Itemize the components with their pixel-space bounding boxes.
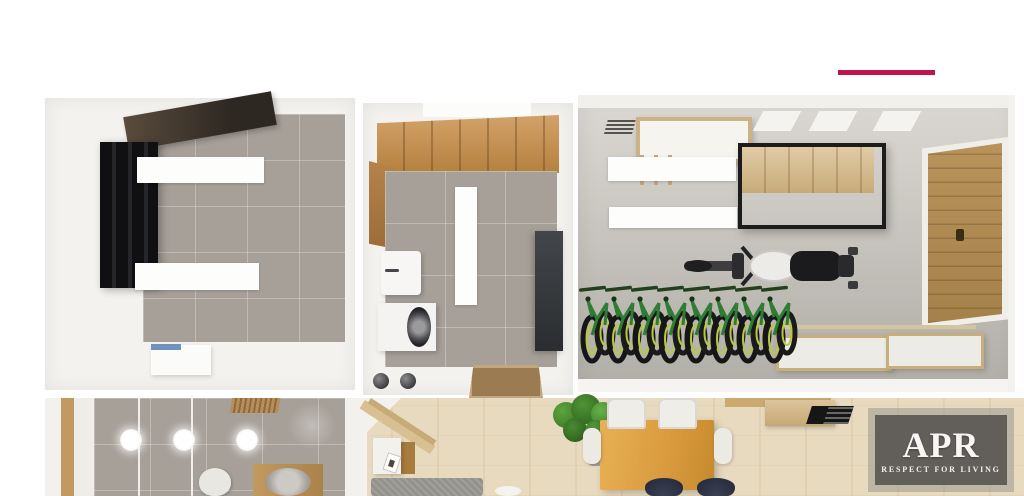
wood-door-frame [61,398,74,496]
vent-grille-icon [604,119,636,134]
laptop [806,406,854,424]
tall-dark-cabinet [535,231,563,351]
brand-tagline: RESPECT FOR LIVING [881,465,1000,474]
doormat [469,365,543,399]
white-wall-shelf [137,157,264,183]
tile-wall [143,114,345,342]
dining-chair-white [607,398,646,429]
rug [371,478,483,496]
floor-knob [400,373,416,389]
brand-logo-text: APR [903,427,980,463]
floor-knob [373,373,389,389]
ceiling-light-icon [236,429,258,451]
watermark-inner: APR RESPECT FOR LIVING [875,415,1007,485]
cabinet-wood-box [742,147,874,193]
dining-chair-dark [697,478,735,496]
floor-plan-render: APR RESPECT FOR LIVING [0,0,1024,496]
dining-chair-white [714,428,732,464]
storage-bench [886,333,984,369]
round-basin [265,468,311,496]
garage [578,95,1015,392]
wall [578,379,1015,392]
suspended-wood-cabinet [738,143,886,229]
wall-panel [423,103,531,117]
utility-room [363,103,573,395]
wooden-garage-door [928,143,1002,323]
wall [345,398,367,496]
white-door [74,398,94,496]
washing-machine-door [407,307,431,347]
storage-box-lid [151,344,181,350]
wood-slat-mat [230,398,281,413]
dining-chair-white [583,428,601,464]
wall [1008,95,1015,392]
faucet-icon [385,269,399,272]
white-stool [495,486,521,496]
sink [381,251,421,295]
ceiling-light-icon [120,429,142,451]
motorcycle [682,235,862,303]
skylight [873,111,922,131]
watermark-badge: APR RESPECT FOR LIVING [868,408,1014,492]
wood-loft-panel [377,115,559,173]
bathroom [45,398,345,496]
white-wall-panel [608,157,736,181]
wall [578,95,1015,108]
dining-chair-dark [645,478,683,496]
toilet [199,468,231,496]
white-wall-panel [609,207,737,228]
accent-underline [838,70,935,75]
storage-room [45,98,355,390]
skylight [809,111,858,131]
door-handle-icon [956,229,964,241]
white-wall-shelf [135,263,259,290]
light-reflection [288,402,336,450]
white-floor-strip [455,187,477,305]
bench-rail [776,325,976,329]
wall [45,398,61,496]
dining-chair-white [658,398,697,429]
ceiling-light-icon [173,429,195,451]
skylight [753,111,802,131]
